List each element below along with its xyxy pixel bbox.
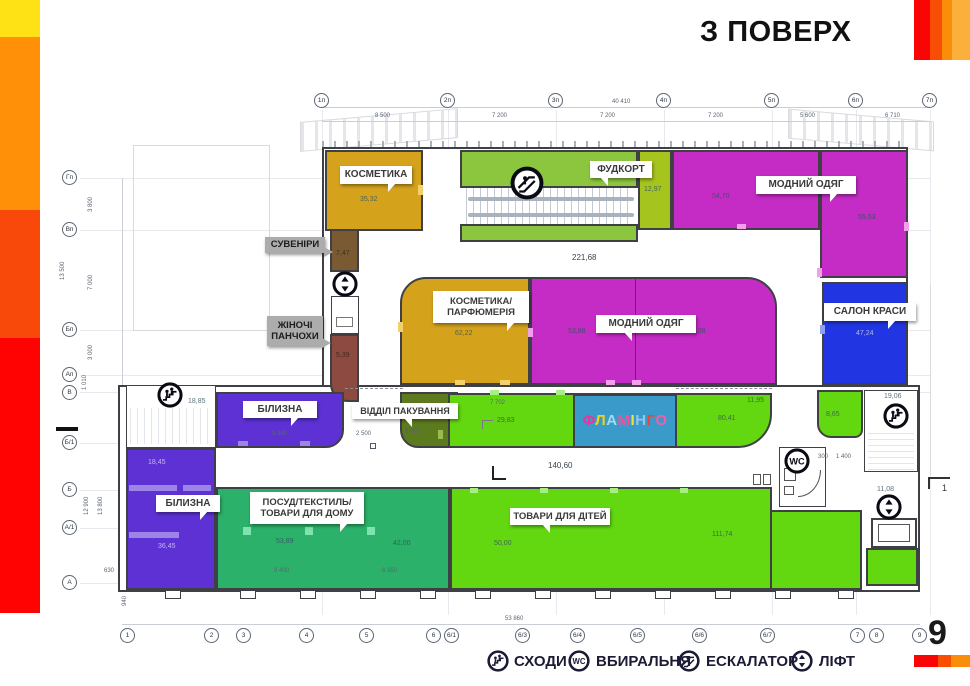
axis-bottom-4: 4 [299, 628, 314, 643]
label-kids-text: ТОВАРИ ДЛЯ ДІТЕЙ [513, 511, 606, 522]
zone-cosmetics [325, 150, 423, 231]
door-tick [820, 325, 825, 334]
dim-pack-h: 3 002 [405, 429, 420, 435]
zone-kids-a [450, 487, 772, 590]
axis-top-3p: 3п [548, 93, 563, 108]
dim-left-3: 3 000 [88, 345, 94, 360]
axis-left-bp: Бп [62, 322, 77, 337]
dim-top-total: 40 410 [612, 99, 630, 105]
label-linen-top-text: БІЛИЗНА [258, 404, 303, 416]
area-stairs-right: 19,06 [884, 393, 902, 400]
label-housewares-line2: ТОВАРИ ДЛЯ ДОМУ [261, 508, 354, 519]
dim-bottom-total: 53 860 [505, 616, 523, 622]
zone-escalator-band-bottom [460, 224, 638, 242]
door-tick [470, 488, 478, 493]
legend-stairs-label: СХОДИ [514, 653, 567, 670]
label-linen-bottom: БІЛИЗНА [156, 495, 220, 512]
page-title: З ПОВЕРХ [700, 16, 860, 49]
dim-top-3: 7 200 [600, 113, 615, 119]
dim-left-4: 1 010 [82, 375, 88, 390]
axis-left-b: Б [62, 482, 77, 497]
axis-top-5p: 5п [764, 93, 779, 108]
area-foodcourt-strip: 12,97 [644, 186, 662, 193]
dim-line-bottom [122, 624, 920, 625]
lift-shaft-left [331, 296, 359, 334]
facade-pilaster [475, 590, 491, 599]
left-strip-orange [0, 37, 40, 210]
wc-fixture [784, 486, 794, 495]
area-kids-a: 50,00 [494, 540, 512, 547]
dim-left-lower-2: 13 800 [98, 497, 104, 515]
annex-outline [133, 145, 270, 331]
axis-left-ap: Ап [62, 367, 77, 382]
wc-lobby-stall [753, 474, 761, 485]
flamingo-letter: Ф [582, 412, 595, 429]
label-stockings-line2: ПАНЧОХИ [271, 331, 318, 342]
axis-top-1p: 1п [314, 93, 329, 108]
axis-left-gp: Гп [62, 170, 77, 185]
area-fashion-c1: 53,88 [568, 328, 586, 335]
door-tick [528, 328, 533, 337]
door-tick [606, 380, 615, 385]
axis-bottom-1: 1 [120, 628, 135, 643]
dim-pack-w: 2 500 [356, 431, 371, 437]
axis-top-6p: 6п [848, 93, 863, 108]
axis-left-a: А [62, 575, 77, 590]
label-foodcourt: ФУДКОРТ [590, 161, 652, 178]
area-strip-d: 8,65 [826, 411, 840, 418]
axis-left-a1: А/1 [62, 520, 77, 535]
lift-icon [876, 494, 902, 520]
label-souvenirs: СУВЕНІРИ [265, 237, 325, 253]
facade-pilaster [655, 590, 671, 599]
label-perfume-line1: КОСМЕТИКА/ [450, 296, 512, 307]
legend-wc-label: ВБИРАЛЬНЯ [596, 653, 691, 670]
label-fashion-center-text: МОДНИЙ ОДЯГ [608, 318, 683, 330]
lift-car-right [878, 524, 910, 542]
area-beauty: 47,24 [856, 330, 874, 337]
shelf-bar [129, 532, 179, 538]
axis-bottom-6-7: 6/7 [760, 628, 775, 643]
dim-wc-a: 300 [818, 454, 828, 460]
label-fashion-center: МОДНИЙ ОДЯГ [596, 315, 696, 333]
facade-pilaster [775, 590, 791, 599]
shelf-square [305, 527, 313, 535]
zone-kids-c [866, 548, 918, 586]
label-souvenirs-text: СУВЕНІРИ [271, 239, 320, 250]
left-strip-red [0, 338, 40, 613]
area-lift-right: 11,08 [877, 486, 894, 493]
door-tick [398, 322, 403, 332]
door-tick [904, 222, 909, 231]
door-tick [540, 488, 548, 493]
dim-wc-b: 1 400 [836, 454, 851, 460]
svg-text:WC: WC [573, 657, 586, 666]
area-kids-b: 111,74 [712, 531, 732, 538]
escalator-rail [468, 213, 634, 217]
lift-shaft-right [871, 518, 917, 548]
flamingo-logo: ФЛАМІНГО [582, 412, 667, 430]
dim-base: 940 [122, 596, 128, 606]
flamingo-letter: О [655, 412, 667, 429]
shelf-square [243, 527, 251, 535]
area-hall-mid: 140,60 [548, 461, 572, 470]
lift-icon [332, 271, 358, 297]
lift-car-left [336, 317, 353, 327]
wc-door-arc [798, 470, 821, 497]
dim-top-4: 7 200 [708, 113, 723, 119]
svg-text:WC: WC [789, 456, 805, 466]
section-mark-right-h [928, 477, 950, 479]
area-hall-top: 221,68 [572, 253, 596, 262]
facade-pilaster [360, 590, 376, 599]
label-housewares-line1: ПОСУД/ТЕКСТИЛЬ/ [263, 497, 352, 508]
dim-top-6: 6 710 [885, 113, 900, 119]
door-tick [817, 268, 822, 277]
bottomright-bar-red [914, 655, 938, 667]
axis-bottom-6-1: 6/1 [444, 628, 459, 643]
dim-line-top-segments [322, 121, 930, 122]
label-cosmetics: КОСМЕТИКА [340, 166, 412, 184]
bottomright-bar-orange [951, 655, 970, 667]
axis-top-2p: 2п [440, 93, 455, 108]
area-housewares-a: 53,89 [276, 538, 294, 545]
door-tick [455, 380, 465, 385]
area-fashion-b: 55,53 [858, 214, 876, 221]
dim-house-b: 6 350 [382, 568, 397, 574]
axis-top-4p: 4п [656, 93, 671, 108]
label-beauty-text: САЛОН КРАСИ [834, 306, 906, 318]
shelf-bar [129, 485, 177, 491]
area-strip-c: 11,95 [747, 397, 764, 404]
topright-stripe-orange [942, 0, 952, 60]
axis-left-b1: Б/1 [62, 435, 77, 450]
axis-top-7p: 7п [922, 93, 937, 108]
floor-plan-page: З ПОВЕРХ 1п 2п 3п 4п 5п 6п 7п 40 410 8 5… [0, 0, 970, 686]
door-tick [632, 380, 641, 385]
axis-bottom-5: 5 [359, 628, 374, 643]
axis-bottom-2: 2 [204, 628, 219, 643]
zone-kids-b [770, 510, 862, 590]
shelf-bar [183, 485, 211, 491]
area-linen-b2: 36,45 [158, 543, 176, 550]
door-tick [418, 185, 423, 195]
area-strip-b: 80,41 [718, 415, 736, 422]
axis-left-v: В [62, 385, 77, 400]
area-cosmetics: 35,32 [360, 196, 378, 203]
door-tick [500, 380, 510, 385]
legend-lift-label: ЛІФТ [819, 653, 855, 670]
axis-bottom-7: 7 [850, 628, 865, 643]
facade-pilaster [420, 590, 436, 599]
wc-lobby-stall [763, 474, 771, 485]
label-beauty-salon: САЛОН КРАСИ [824, 303, 916, 321]
area-linen-b1: 18,45 [148, 459, 166, 466]
wc-icon: WC [784, 448, 810, 474]
flamingo-letter: Л [595, 412, 606, 429]
area-strip-a: 29,83 [497, 417, 515, 424]
dim-left-lower-1: 12 900 [84, 497, 90, 515]
label-fashion-top-text: МОДНИЙ ОДЯГ [768, 179, 843, 191]
area-souvenirs: 7,47 [336, 250, 350, 257]
level-mark-small [482, 420, 493, 429]
stairs-icon [883, 403, 909, 429]
dim-top-1: 8 500 [375, 113, 390, 119]
column-mark [370, 443, 376, 449]
stairs-left-treads [130, 408, 212, 444]
dim-left-total: 13 500 [60, 262, 66, 280]
axis-bottom-9: 9 [912, 628, 927, 643]
dim-top-2: 7 200 [492, 113, 507, 119]
flamingo-letter: М [618, 412, 631, 429]
topright-stripe-amber [952, 0, 970, 60]
door-tick [610, 488, 618, 493]
axis-bottom-3: 3 [236, 628, 251, 643]
bottomright-bar-vermilion [938, 655, 951, 667]
legend-escalator-label: ЕСКАЛАТОР [706, 653, 798, 670]
area-stockings: 5,39 [336, 352, 350, 359]
facade-pilaster [595, 590, 611, 599]
escalator-icon [510, 166, 544, 200]
legend-wc-icon: WC [568, 650, 590, 672]
axis-bottom-6: 6 [426, 628, 441, 643]
dim-top-5: 5 600 [800, 113, 815, 119]
label-stockings: ЖІНОЧІ ПАНЧОХИ [267, 316, 323, 346]
dim-line-top-total [322, 107, 930, 108]
zone-shop-strip-b [817, 390, 863, 438]
escalator-hatch [466, 188, 632, 224]
topright-stripe-red [914, 0, 930, 60]
flamingo-letter: Н [635, 412, 646, 429]
dashed-edge [345, 388, 403, 389]
area-perfume: 62,22 [455, 330, 473, 337]
label-cosmetics-perfume: КОСМЕТИКА/ ПАРФЮМЕРІЯ [433, 291, 529, 323]
door-tick [556, 390, 565, 395]
area-housewares-b: 42,00 [393, 540, 411, 547]
left-strip-vermilion [0, 210, 40, 338]
upper-wall-comb [322, 141, 908, 147]
stairs-right-treads [868, 432, 914, 470]
page-number: 9 [928, 614, 947, 653]
facade-pilaster [715, 590, 731, 599]
level-mark [492, 466, 506, 480]
label-foodcourt-text: ФУДКОРТ [597, 164, 645, 176]
label-linen-top: БІЛИЗНА [243, 401, 317, 418]
axis-bottom-6-6: 6/6 [692, 628, 707, 643]
left-strip-yellow [0, 0, 40, 37]
dashed-edge [676, 388, 772, 389]
label-kids: ТОВАРИ ДЛЯ ДІТЕЙ [510, 508, 610, 525]
facade-pilaster [535, 590, 551, 599]
axis-bottom-6-4: 6/4 [570, 628, 585, 643]
topright-stripe-vermilion [930, 0, 942, 60]
dim-house-a: 8 400 [274, 568, 289, 574]
section-mark-left [56, 427, 78, 431]
facade-pilaster [165, 590, 181, 599]
dim-strip: 7 702 [490, 400, 505, 406]
section-label-right: 1 [942, 483, 947, 493]
axis-bottom-6-3: 6/3 [515, 628, 530, 643]
axis-bottom-6-5: 6/5 [630, 628, 645, 643]
facade-pilaster [300, 590, 316, 599]
label-cosmetics-text: КОСМЕТИКА [345, 169, 408, 181]
dim-line-left [122, 178, 123, 392]
dim-linen-w: 630 [104, 568, 114, 574]
flamingo-letter: А [606, 412, 617, 429]
door-tick [238, 441, 248, 446]
stairs-icon [157, 382, 183, 408]
dim-left-1: 3 800 [88, 197, 94, 212]
section-mark-right-v [928, 477, 930, 489]
label-fashion-top: МОДНИЙ ОДЯГ [756, 176, 856, 194]
escalator-rail [468, 197, 634, 201]
legend-stairs-icon [487, 650, 509, 672]
door-tick [490, 390, 499, 395]
label-housewares: ПОСУД/ТЕКСТИЛЬ/ ТОВАРИ ДЛЯ ДОМУ [250, 492, 364, 524]
flamingo-sign: ФЛАМІНГО [573, 394, 677, 448]
facade-pilaster [838, 590, 854, 599]
shelf-square [367, 527, 375, 535]
label-linen-bottom-text: БІЛИЗНА [166, 498, 211, 510]
label-packaging-text: ВІДДІЛ ПАКУВАННЯ [360, 406, 449, 417]
door-tick [438, 430, 443, 439]
door-tick [300, 441, 310, 446]
area-stairs-left: 18,85 [188, 398, 206, 405]
door-tick [737, 224, 746, 229]
facade-pilaster [240, 590, 256, 599]
label-stockings-line1: ЖІНОЧІ [278, 320, 313, 331]
label-perfume-line2: ПАРФЮМЕРІЯ [447, 307, 515, 318]
axis-bottom-8: 8 [869, 628, 884, 643]
dim-linen-top: 9 340 [272, 431, 287, 437]
right-roof-line [930, 285, 931, 475]
label-packaging: ВІДДІЛ ПАКУВАННЯ [352, 403, 458, 419]
door-tick [680, 488, 688, 493]
dim-left-2: 7 000 [88, 275, 94, 290]
axis-left-vp: Вп [62, 222, 77, 237]
area-fashion-a: 54,70 [712, 193, 730, 200]
